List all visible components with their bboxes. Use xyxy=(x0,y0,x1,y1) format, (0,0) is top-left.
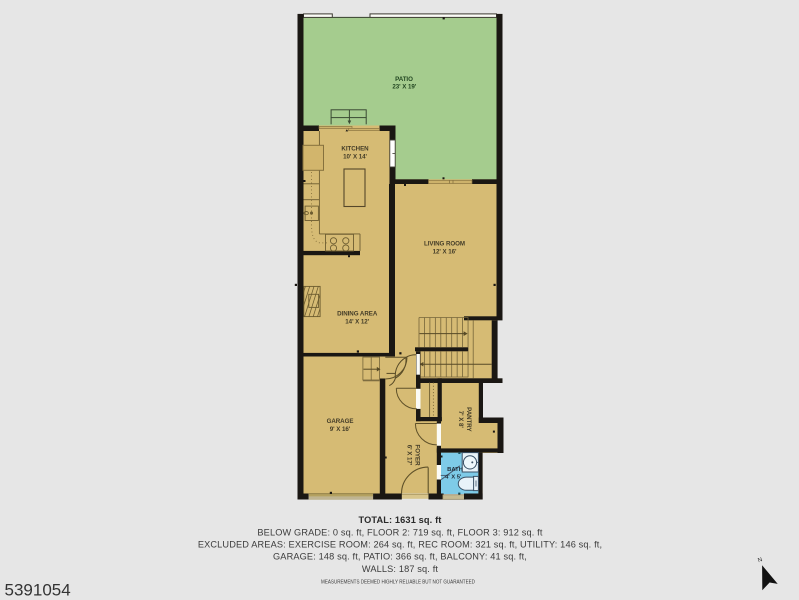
svg-text:DINING AREA: DINING AREA xyxy=(337,310,378,317)
svg-text:GARAGE: 148 sq. ft, PATIO: 366: GARAGE: 148 sq. ft, PATIO: 366 sq. ft, B… xyxy=(273,552,527,562)
svg-text:5391054: 5391054 xyxy=(5,581,71,600)
svg-text:BATH: BATH xyxy=(447,467,463,473)
svg-text:EXCLUDED AREAS: EXERCISE ROOM:: EXCLUDED AREAS: EXERCISE ROOM: 264 sq. f… xyxy=(198,540,602,550)
svg-text:TOTAL: 1631 sq. ft: TOTAL: 1631 sq. ft xyxy=(358,515,441,525)
svg-text:FOYER: FOYER xyxy=(414,444,421,466)
svg-text:MEASUREMENTS DEEMED HIGHLY REL: MEASUREMENTS DEEMED HIGHLY RELIABLE BUT … xyxy=(321,580,475,586)
svg-text:14' X 12': 14' X 12' xyxy=(345,319,369,326)
svg-text:BELOW GRADE: 0 sq. ft, FLOOR 2: BELOW GRADE: 0 sq. ft, FLOOR 2: 719 sq. … xyxy=(257,527,542,537)
svg-text:KITCHEN: KITCHEN xyxy=(341,145,369,152)
svg-text:PANTRY: PANTRY xyxy=(465,407,472,432)
svg-text:4' X 5': 4' X 5' xyxy=(445,475,462,481)
svg-text:PATIO: PATIO xyxy=(395,76,413,83)
svg-text:WALLS: 187 sq. ft: WALLS: 187 sq. ft xyxy=(362,564,439,574)
svg-text:LIVING ROOM: LIVING ROOM xyxy=(424,241,465,248)
svg-text:GARAGE: GARAGE xyxy=(327,418,354,425)
svg-text:9' X 16': 9' X 16' xyxy=(330,426,351,433)
svg-text:6' X 17': 6' X 17' xyxy=(406,445,413,466)
svg-text:23' X 19': 23' X 19' xyxy=(392,84,416,91)
svg-text:12' X 16': 12' X 16' xyxy=(433,249,457,256)
svg-text:10' X 14': 10' X 14' xyxy=(343,154,367,161)
svg-text:7' X 8': 7' X 8' xyxy=(457,411,464,429)
